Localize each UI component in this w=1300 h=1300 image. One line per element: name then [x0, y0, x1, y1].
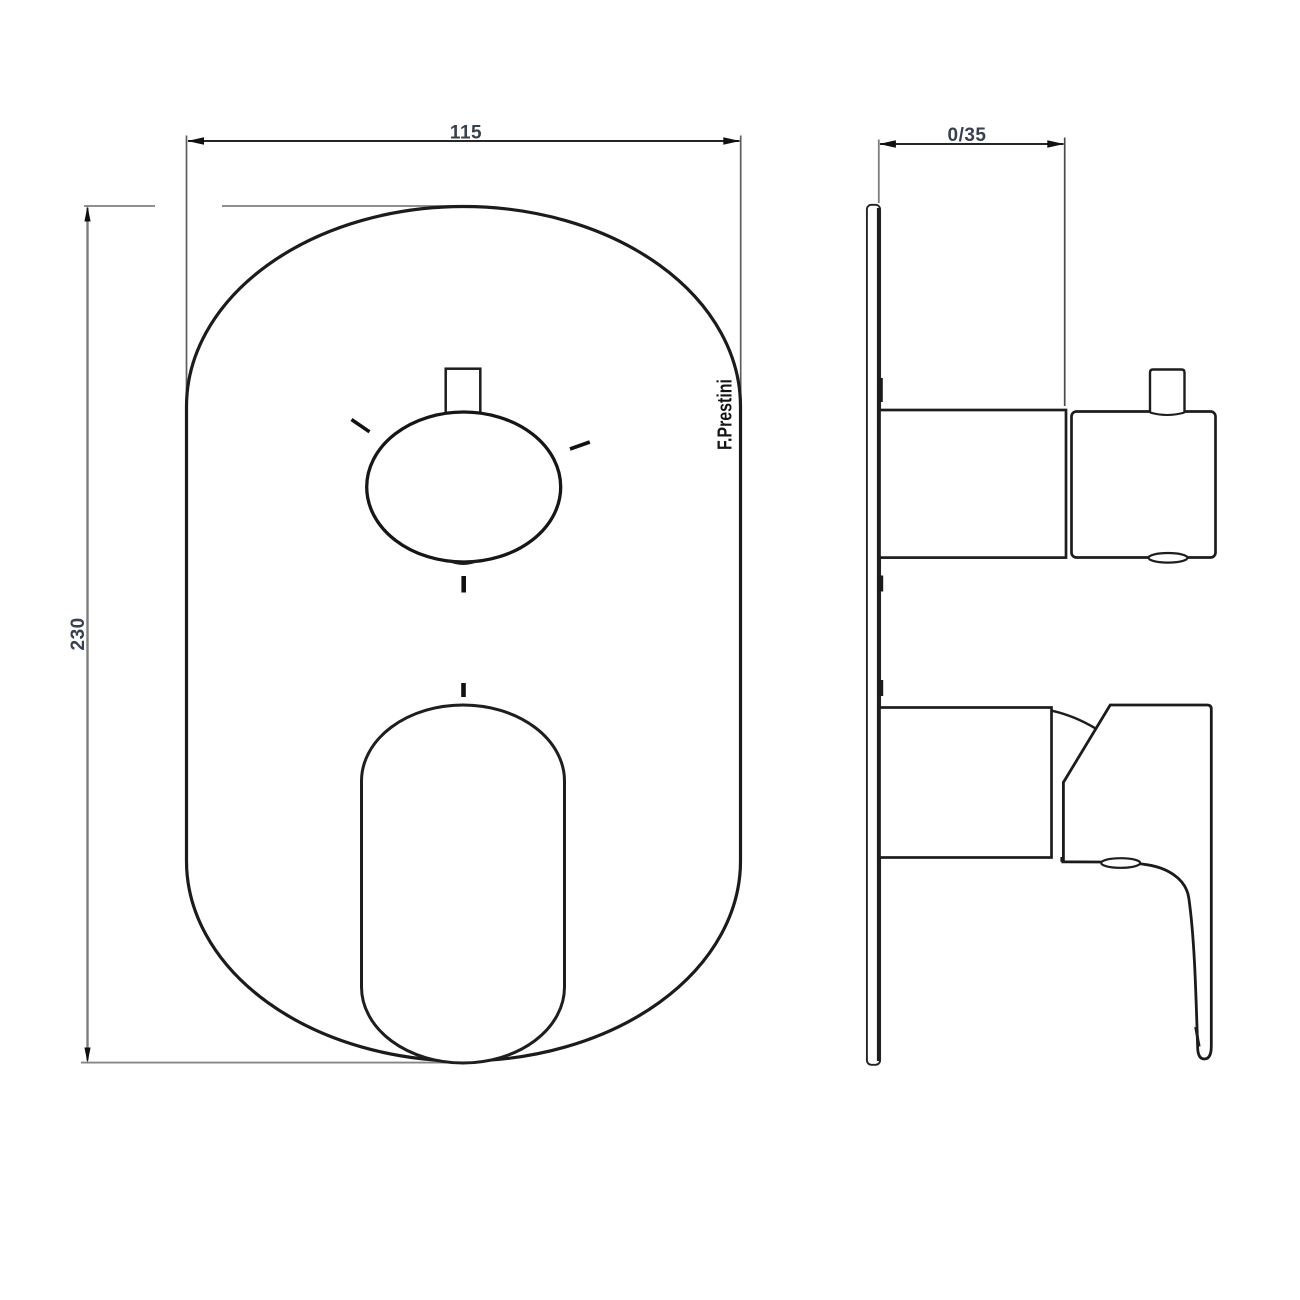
svg-text:115: 115 [450, 123, 482, 144]
svg-text:F.Prestini: F.Prestini [715, 379, 737, 450]
svg-text:230: 230 [68, 617, 89, 650]
svg-text:0/35: 0/35 [948, 125, 987, 146]
